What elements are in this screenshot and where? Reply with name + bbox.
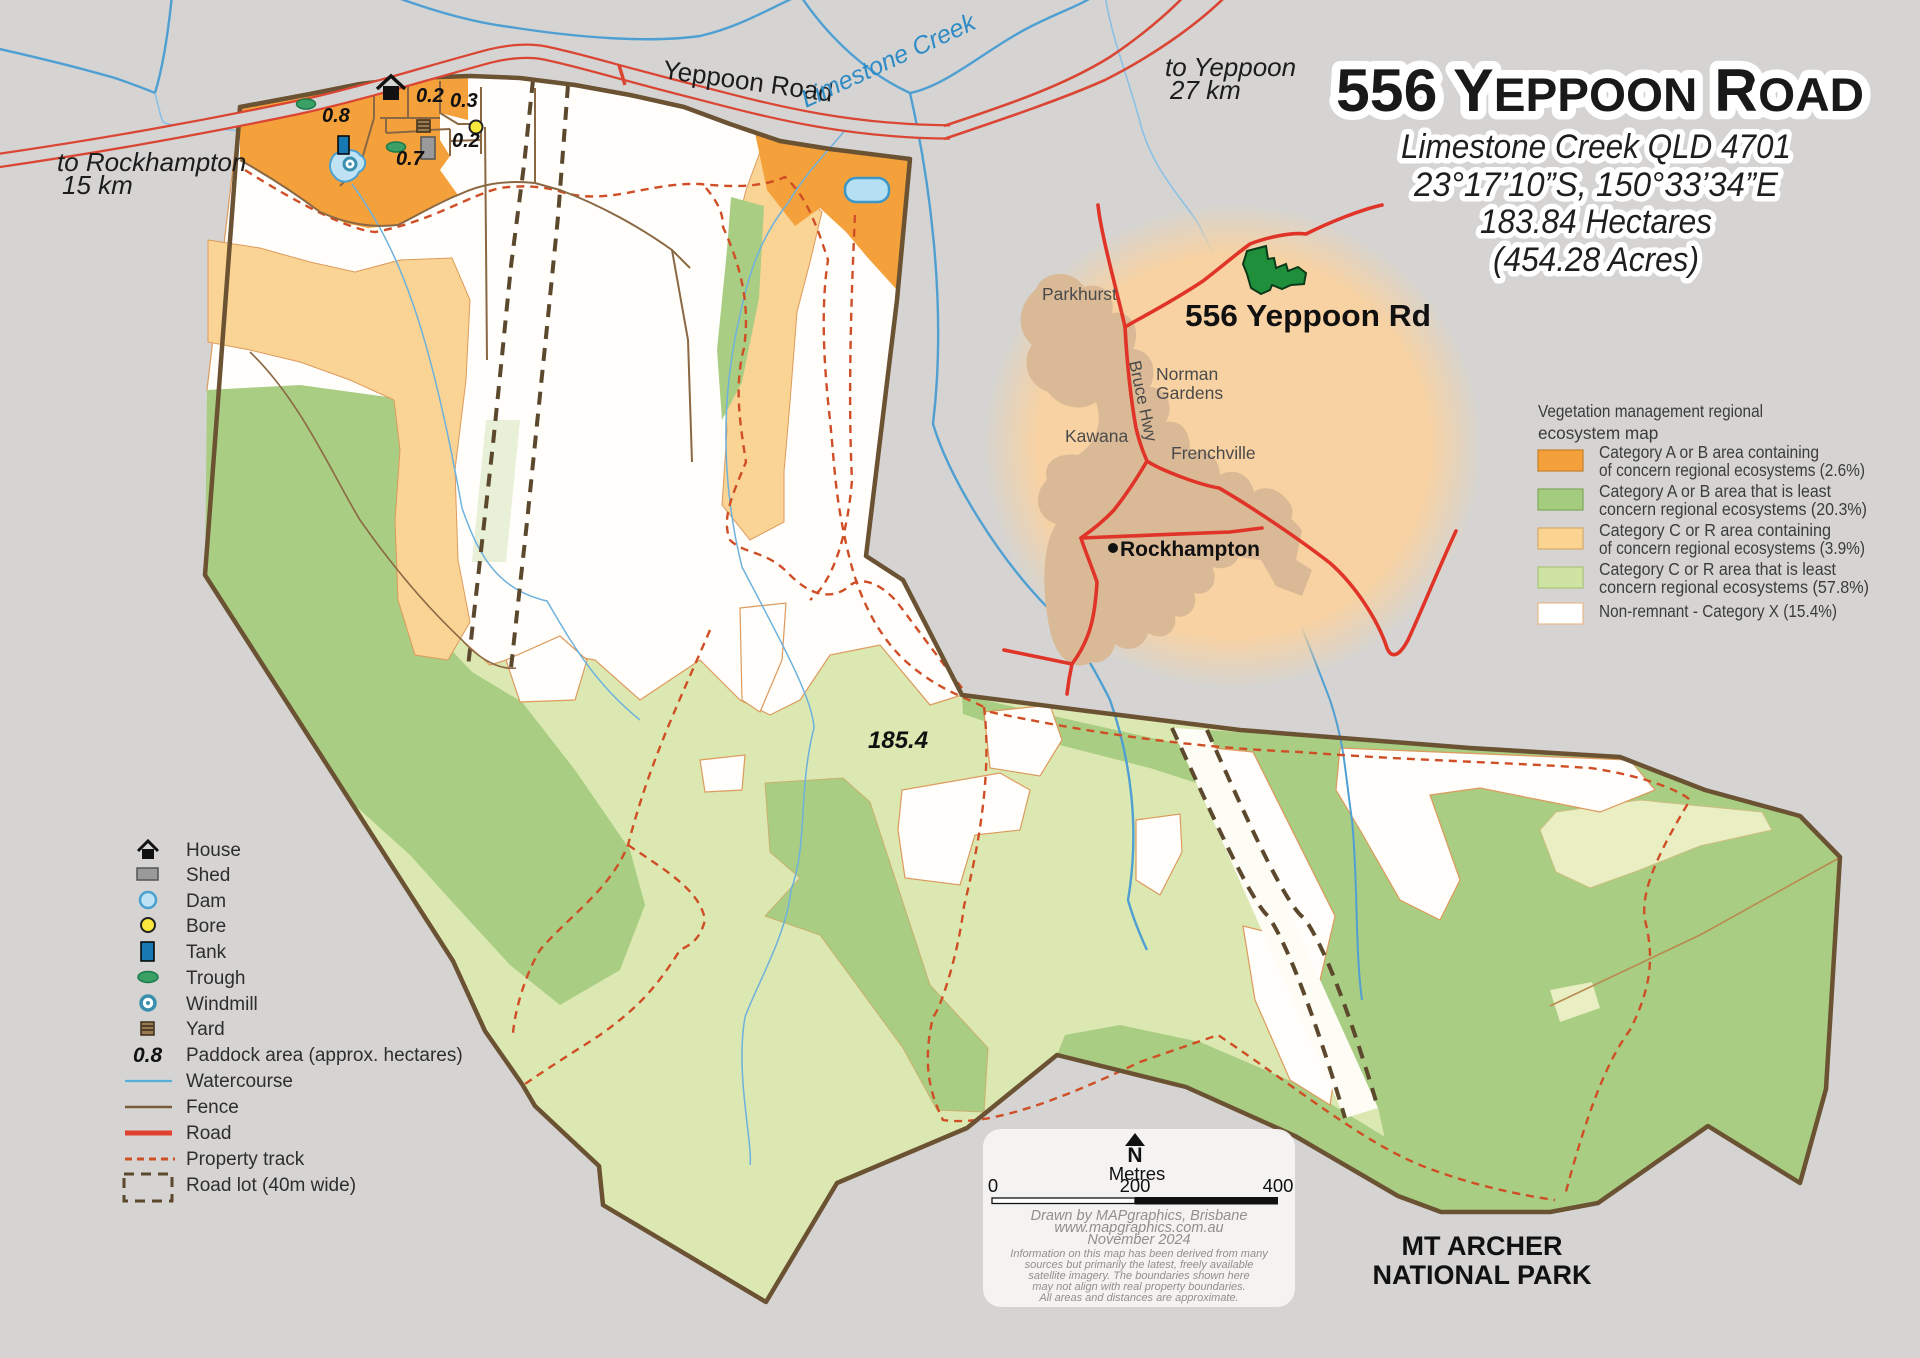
- svg-text:Watercourse: Watercourse: [186, 1071, 293, 1092]
- svg-text:Vegetation management regional: Vegetation management regional: [1538, 401, 1763, 421]
- svg-text:0.2: 0.2: [416, 85, 444, 107]
- svg-text:Shed: Shed: [186, 865, 230, 886]
- svg-text:Road lot (40m wide): Road lot (40m wide): [186, 1175, 356, 1196]
- svg-text:Tank: Tank: [186, 942, 227, 963]
- svg-text:Category A or B area containin: Category A or B area containing: [1599, 442, 1819, 462]
- svg-text:of concern regional ecosystems: of concern regional ecosystems (2.6%): [1599, 460, 1865, 480]
- svg-text:of concern regional ecosystems: of concern regional ecosystems (3.9%): [1599, 538, 1865, 558]
- svg-text:556 YEPPOON ROAD: 556 YEPPOON ROAD: [1336, 57, 1864, 124]
- svg-text:ecosystem map: ecosystem map: [1538, 423, 1658, 443]
- svg-text:Bore: Bore: [186, 916, 226, 937]
- svg-text:23°17’10”S, 150°33’34”E: 23°17’10”S, 150°33’34”E: [1413, 166, 1778, 204]
- svg-text:concern regional ecosystems (2: concern regional ecosystems (20.3%): [1599, 499, 1867, 519]
- svg-text:185.4: 185.4: [868, 727, 928, 754]
- svg-text:Paddock area (approx. hectares: Paddock area (approx. hectares): [186, 1045, 463, 1066]
- svg-text:November 2024: November 2024: [1087, 1232, 1190, 1248]
- svg-text:15 km: 15 km: [62, 170, 133, 200]
- svg-text:All areas and distances are ap: All areas and distances are approximate.: [1038, 1292, 1238, 1304]
- svg-text:House: House: [186, 840, 241, 861]
- svg-text:Kawana: Kawana: [1065, 426, 1129, 446]
- svg-text:concern regional ecosystems (5: concern regional ecosystems (57.8%): [1599, 577, 1869, 597]
- svg-text:NATIONAL PARK: NATIONAL PARK: [1373, 1260, 1592, 1290]
- svg-text:0.2: 0.2: [452, 130, 480, 152]
- svg-text:Fence: Fence: [186, 1097, 239, 1118]
- svg-text:Road: Road: [186, 1123, 231, 1144]
- svg-text:Non-remnant - Category X (15.4: Non-remnant - Category X (15.4%): [1599, 601, 1837, 621]
- svg-text:200: 200: [1120, 1175, 1151, 1196]
- svg-text:Property track: Property track: [186, 1149, 305, 1170]
- svg-text:Category A or B area that is l: Category A or B area that is least: [1599, 481, 1831, 501]
- svg-text:Windmill: Windmill: [186, 994, 258, 1015]
- svg-text:0.8: 0.8: [322, 105, 351, 127]
- svg-text:Norman: Norman: [1156, 364, 1218, 384]
- svg-text:0: 0: [988, 1175, 998, 1196]
- svg-text:Parkhurst: Parkhurst: [1042, 284, 1117, 304]
- svg-text:Rockhampton: Rockhampton: [1120, 538, 1260, 561]
- svg-text:Dam: Dam: [186, 891, 226, 912]
- svg-text:0.7: 0.7: [396, 148, 425, 170]
- svg-text:Category C or R area that is l: Category C or R area that is least: [1599, 559, 1836, 579]
- svg-text:183.84 Hectares: 183.84 Hectares: [1480, 203, 1712, 241]
- svg-text:Limestone Creek QLD 4701: Limestone Creek QLD 4701: [1401, 128, 1791, 166]
- svg-text:MT ARCHER: MT ARCHER: [1402, 1231, 1563, 1261]
- svg-text:Category C or R area containin: Category C or R area containing: [1599, 520, 1831, 540]
- svg-text:27 km: 27 km: [1169, 75, 1241, 105]
- svg-text:400: 400: [1263, 1175, 1294, 1196]
- svg-text:0.8: 0.8: [133, 1044, 163, 1067]
- svg-text:556 Yeppoon Rd: 556 Yeppoon Rd: [1185, 298, 1431, 333]
- svg-text:(454.28 Acres): (454.28 Acres): [1493, 241, 1699, 279]
- svg-text:Trough: Trough: [186, 968, 246, 989]
- svg-text:Frenchville: Frenchville: [1171, 443, 1256, 463]
- svg-text:Yard: Yard: [186, 1019, 225, 1040]
- svg-text:Gardens: Gardens: [1156, 383, 1223, 403]
- svg-text:0.3: 0.3: [450, 90, 478, 112]
